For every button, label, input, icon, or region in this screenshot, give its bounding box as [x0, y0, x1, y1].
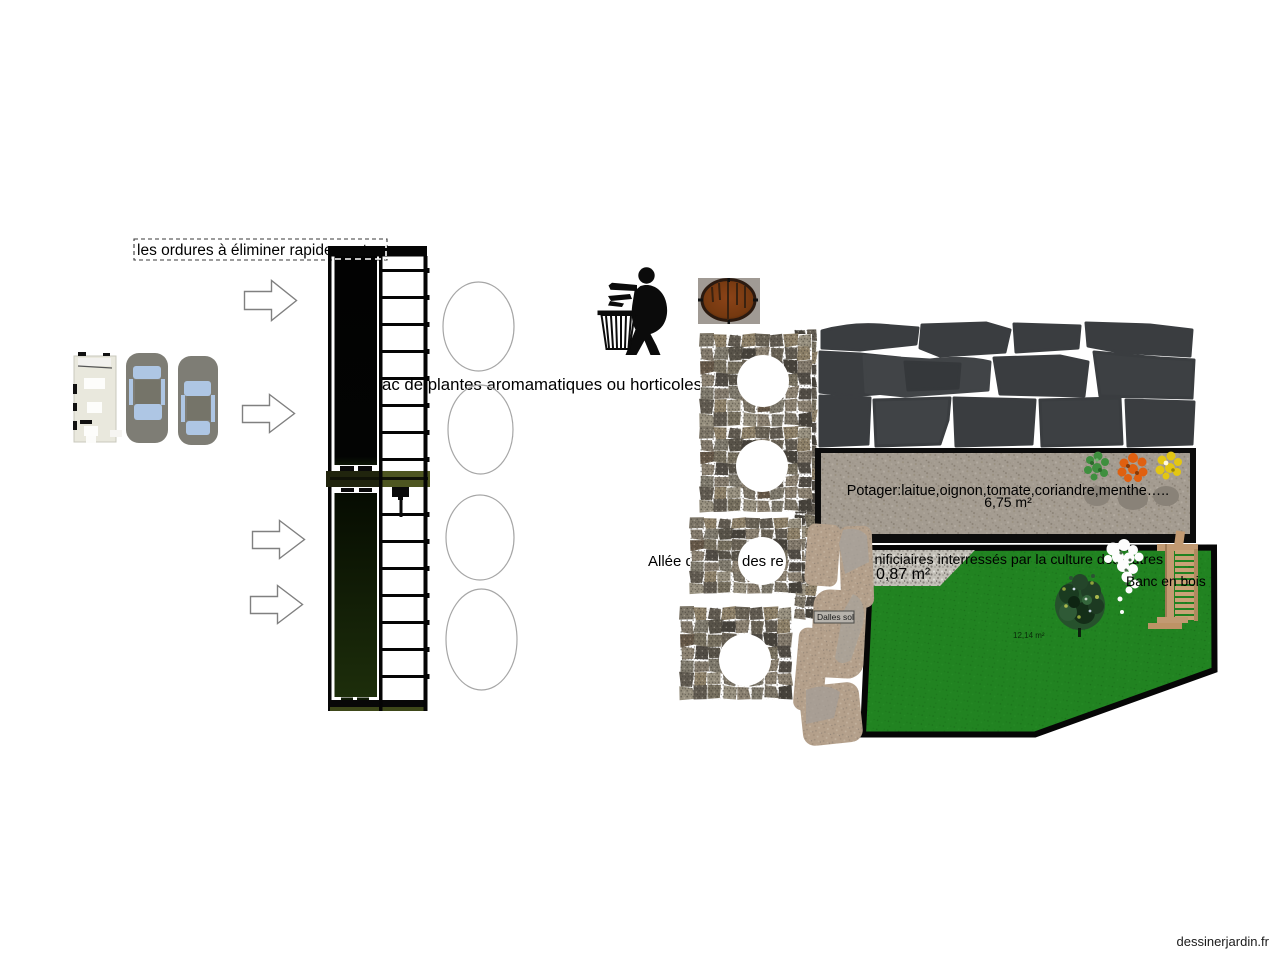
svg-text:ac de plantes aromamatiques o: ac de plantes aromamatiques ou horticole…: [382, 375, 702, 394]
svg-text:dessinerjardin.fr: dessinerjardin.fr: [1177, 934, 1270, 949]
svg-text:des re: des re: [742, 553, 784, 570]
svg-text:0,87 m²: 0,87 m²: [876, 566, 931, 583]
svg-text:Banc en bois: Banc en bois: [1126, 574, 1206, 589]
svg-text:Dalles sol: Dalles sol: [817, 612, 854, 622]
svg-text:12,14 m²: 12,14 m²: [1013, 631, 1045, 640]
svg-text:6,75 m²: 6,75 m²: [984, 494, 1032, 510]
